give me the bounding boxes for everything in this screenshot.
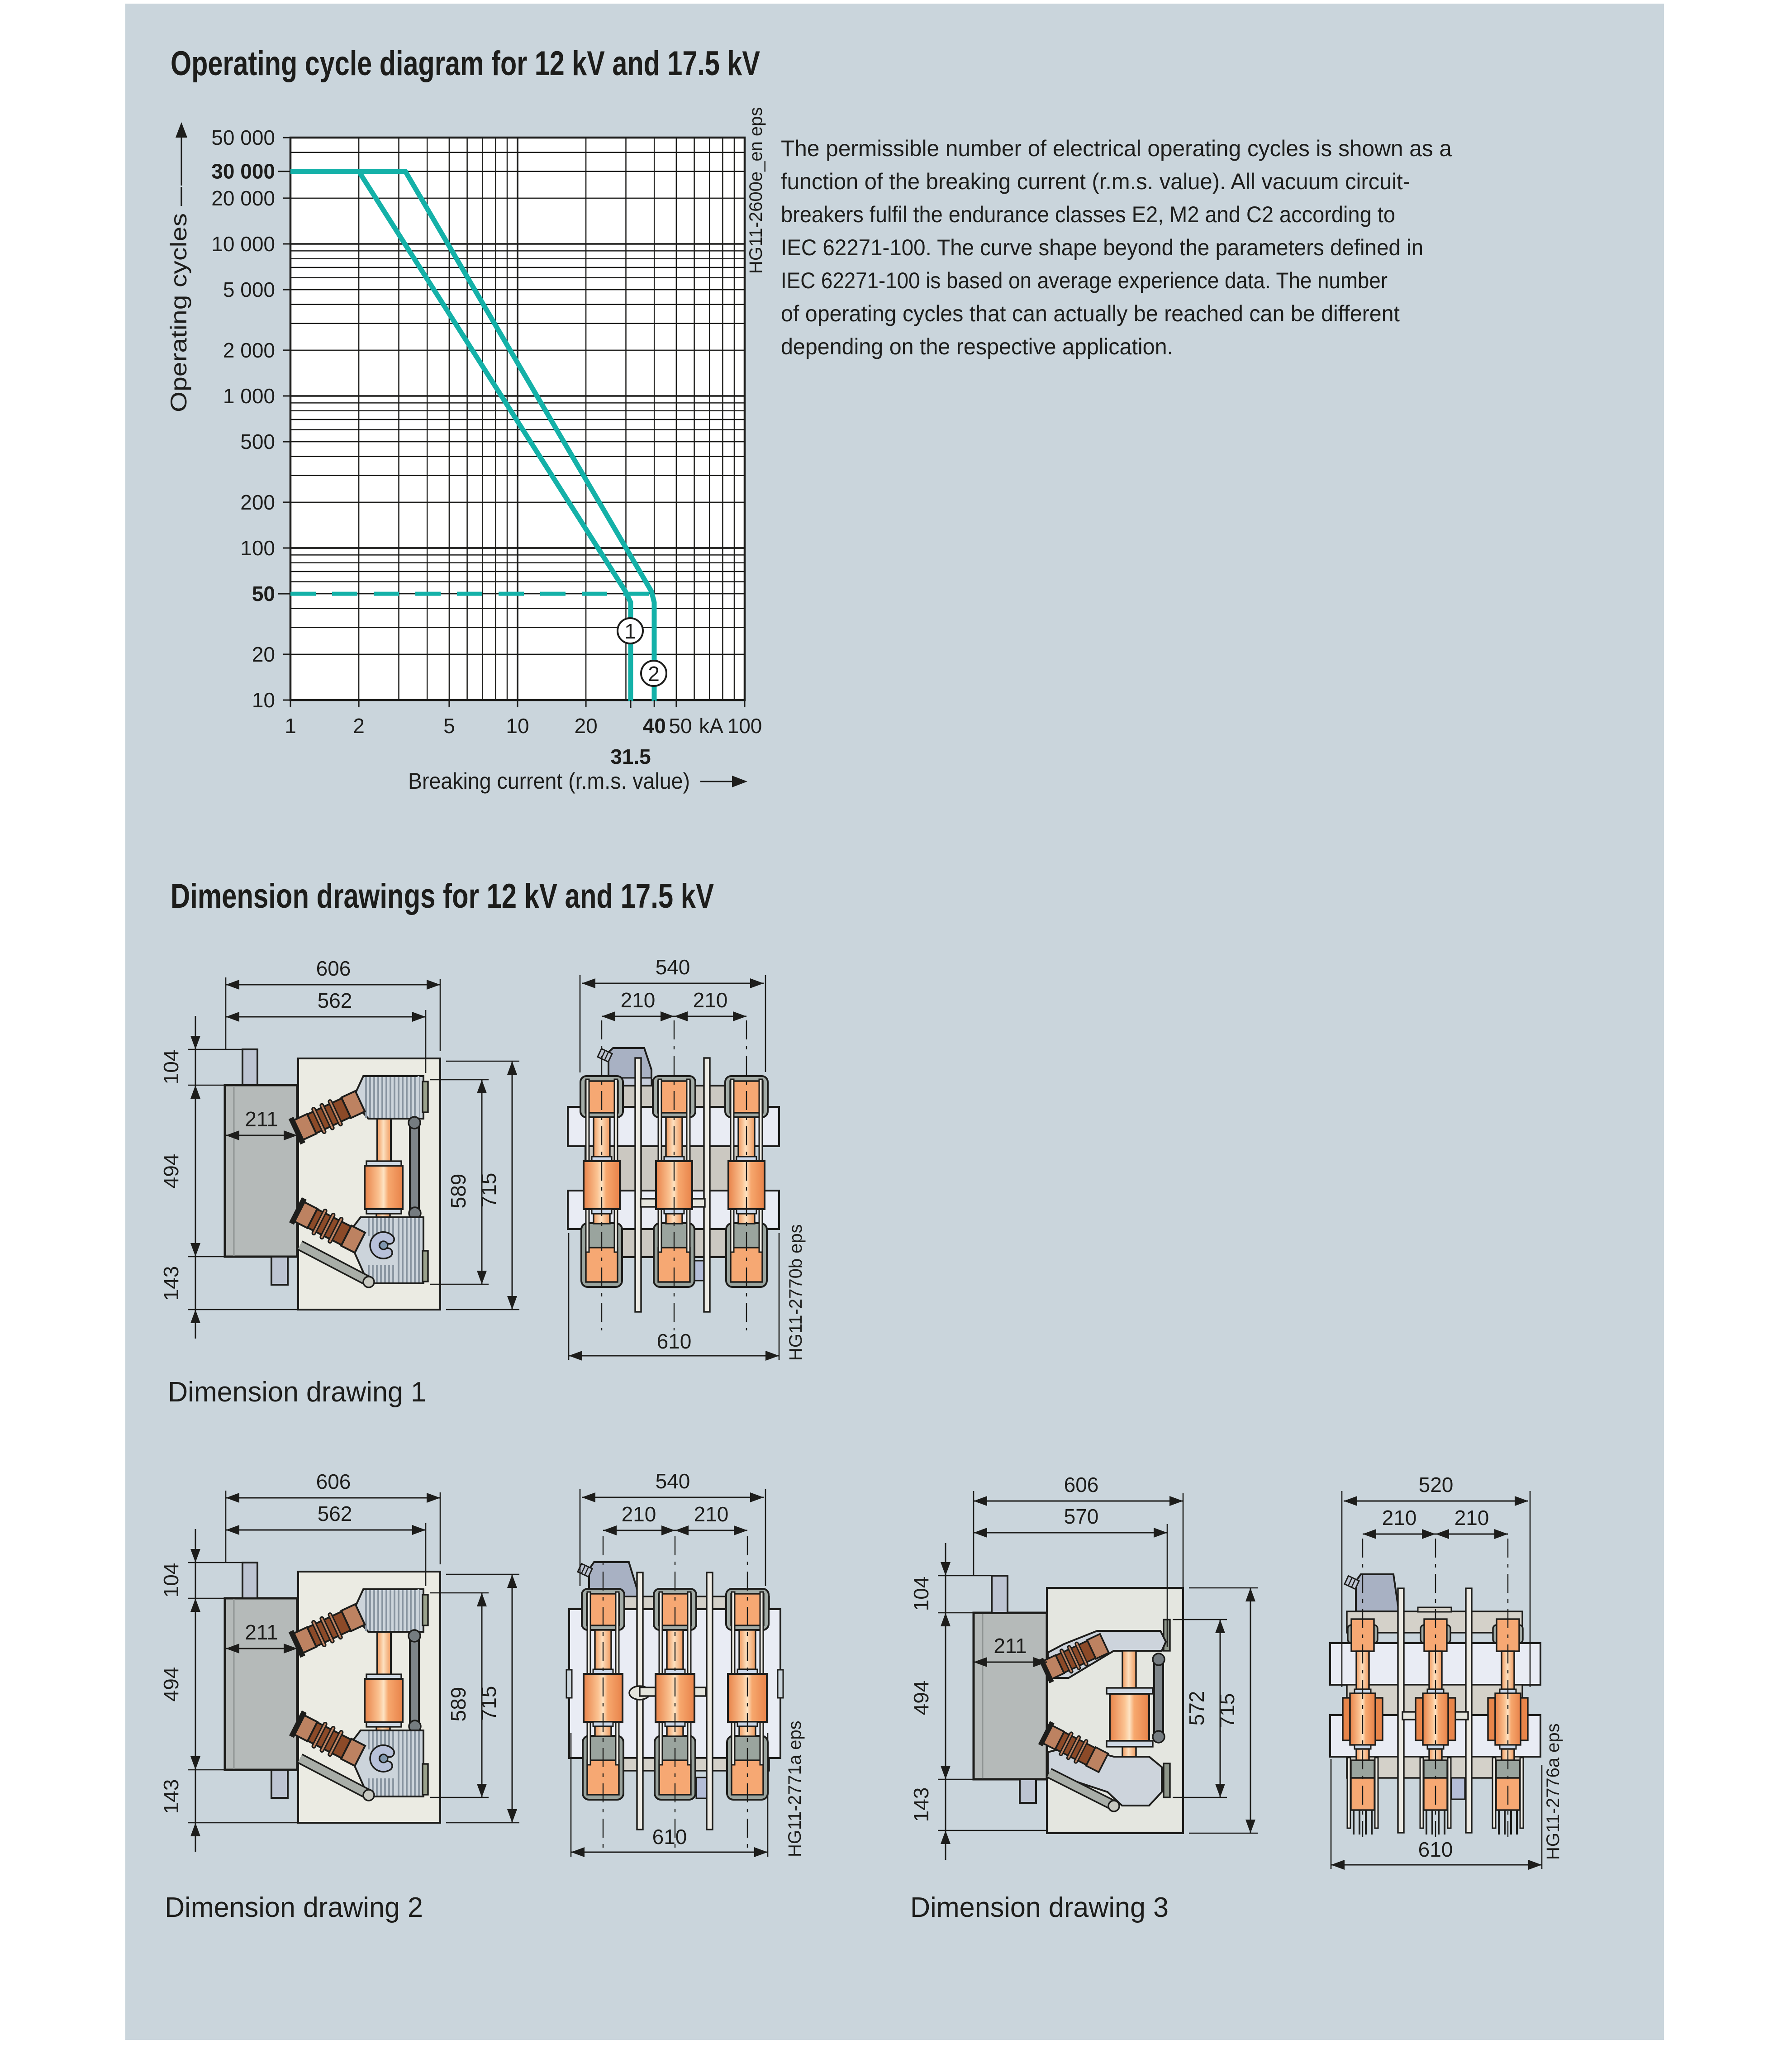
svg-text:143: 143 — [909, 1787, 933, 1822]
svg-text:50 000: 50 000 — [211, 126, 275, 149]
svg-text:540: 540 — [656, 955, 690, 979]
svg-text:210: 210 — [1455, 1506, 1489, 1530]
svg-text:HG11-2771a eps: HG11-2771a eps — [785, 1720, 805, 1857]
svg-text:Dimension drawings for 12 kV a: Dimension drawings for 12 kV and 17.5 kV — [171, 877, 714, 915]
svg-text:20 000: 20 000 — [211, 186, 275, 210]
svg-text:211: 211 — [245, 1107, 278, 1131]
svg-text:494: 494 — [159, 1154, 183, 1189]
svg-text:606: 606 — [316, 1470, 351, 1493]
svg-text:IEC 62271-100. The curve shape: IEC 62271-100. The curve shape beyond th… — [781, 235, 1423, 260]
svg-text:30 000: 30 000 — [211, 160, 275, 183]
svg-text:589: 589 — [447, 1174, 470, 1209]
svg-text:Dimension drawing 2: Dimension drawing 2 — [165, 1892, 423, 1923]
svg-text:715: 715 — [1215, 1693, 1239, 1728]
svg-text:610: 610 — [1418, 1838, 1453, 1861]
svg-text:Dimension drawing 3: Dimension drawing 3 — [910, 1892, 1169, 1923]
svg-text:210: 210 — [622, 1502, 656, 1526]
svg-text:breakers fulfil the endurance: breakers fulfil the endurance classes E2… — [781, 202, 1395, 227]
svg-text:Dimension drawing 1: Dimension drawing 1 — [168, 1377, 426, 1408]
svg-text:10: 10 — [252, 688, 275, 712]
svg-text:210: 210 — [694, 1502, 729, 1526]
svg-text:210: 210 — [693, 988, 728, 1012]
svg-text:100: 100 — [240, 536, 275, 560]
svg-text:of operating cycles that can a: of operating cycles that can actually be… — [781, 301, 1400, 326]
svg-text:5: 5 — [443, 714, 455, 738]
svg-text:The permissible number of elec: The permissible number of electrical ope… — [781, 136, 1452, 161]
svg-text:1 000: 1 000 — [223, 384, 275, 408]
svg-text:HG11-2600e_en eps: HG11-2600e_en eps — [746, 107, 766, 274]
svg-text:572: 572 — [1185, 1691, 1208, 1726]
svg-text:50: 50 — [669, 714, 692, 738]
svg-text:HG11-2776a eps: HG11-2776a eps — [1543, 1723, 1563, 1860]
svg-text:606: 606 — [316, 957, 351, 980]
svg-text:kA: kA — [699, 714, 723, 738]
svg-text:104: 104 — [159, 1563, 183, 1598]
svg-text:function of the breaking curre: function of the breaking current (r.m.s.… — [781, 169, 1410, 194]
svg-text:143: 143 — [159, 1779, 183, 1814]
svg-text:589: 589 — [447, 1687, 470, 1722]
svg-text:100: 100 — [727, 714, 762, 738]
svg-text:2: 2 — [353, 714, 365, 738]
svg-text:104: 104 — [159, 1050, 183, 1085]
svg-text:610: 610 — [652, 1825, 687, 1849]
svg-text:1: 1 — [624, 619, 636, 643]
svg-text:104: 104 — [909, 1577, 933, 1611]
svg-text:Operating cycles: Operating cycles — [166, 213, 191, 412]
svg-text:depending on the respective ap: depending on the respective application. — [781, 334, 1173, 359]
svg-text:570: 570 — [1064, 1505, 1099, 1528]
svg-text:Operating cycle diagram for 12: Operating cycle diagram for 12 kV and 17… — [171, 44, 760, 83]
svg-text:211: 211 — [993, 1634, 1027, 1658]
svg-text:210: 210 — [621, 988, 656, 1012]
svg-text:494: 494 — [909, 1681, 933, 1715]
svg-text:Breaking current (r.m.s. value: Breaking current (r.m.s. value) — [408, 768, 690, 794]
svg-text:1: 1 — [285, 714, 296, 738]
svg-text:540: 540 — [656, 1469, 690, 1493]
svg-text:2: 2 — [648, 662, 660, 686]
svg-text:10: 10 — [506, 714, 529, 738]
svg-text:210: 210 — [1382, 1506, 1417, 1530]
svg-text:143: 143 — [159, 1266, 183, 1301]
svg-text:10 000: 10 000 — [211, 232, 275, 256]
svg-text:500: 500 — [240, 430, 275, 453]
svg-text:715: 715 — [477, 1173, 500, 1208]
svg-text:40: 40 — [643, 714, 666, 738]
svg-text:715: 715 — [477, 1686, 500, 1721]
svg-text:200: 200 — [240, 491, 275, 514]
svg-text:IEC 62271-100 is based on aver: IEC 62271-100 is based on average experi… — [781, 268, 1388, 293]
svg-text:HG11-2770b eps: HG11-2770b eps — [786, 1224, 806, 1361]
svg-text:211: 211 — [245, 1620, 278, 1644]
svg-text:610: 610 — [657, 1329, 692, 1353]
svg-text:50: 50 — [252, 582, 275, 605]
svg-text:562: 562 — [318, 1502, 352, 1525]
svg-text:2 000: 2 000 — [223, 338, 275, 362]
svg-text:520: 520 — [1419, 1473, 1454, 1496]
svg-text:606: 606 — [1064, 1473, 1099, 1496]
svg-text:562: 562 — [318, 989, 352, 1012]
svg-text:5 000: 5 000 — [223, 278, 275, 301]
svg-text:20: 20 — [252, 643, 275, 666]
svg-text:494: 494 — [159, 1667, 183, 1702]
svg-text:31.5: 31.5 — [610, 745, 651, 768]
svg-text:20: 20 — [575, 714, 598, 738]
